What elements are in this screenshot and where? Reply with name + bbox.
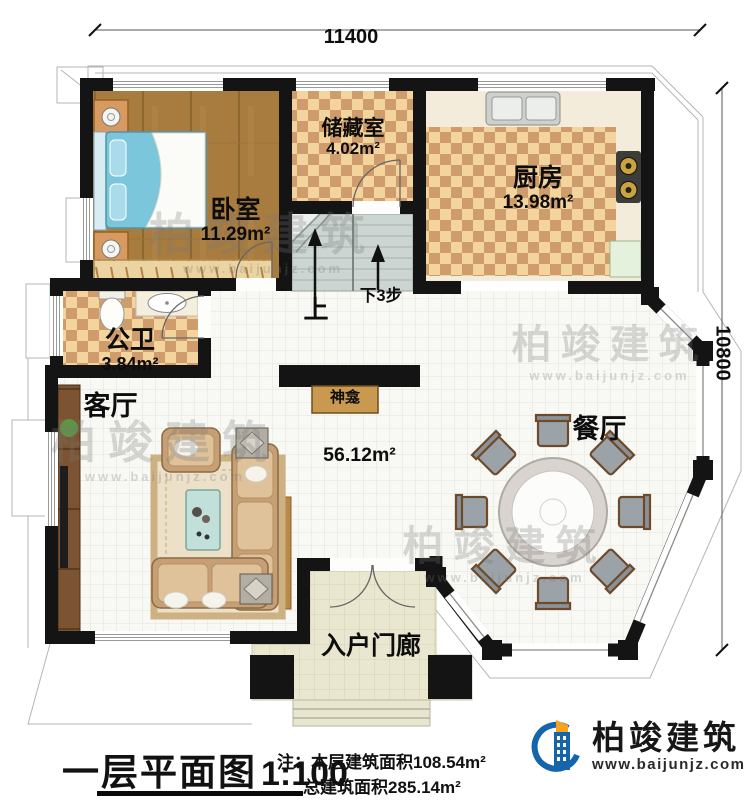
room-label-bedroom: 卧室 11.29m² — [148, 197, 323, 245]
room-label-kitchen: 厨房 13.98m² — [468, 165, 608, 213]
bed-headboard — [94, 132, 106, 230]
open-area-label: 56.12m² — [287, 445, 432, 466]
note-line2: 总建筑面积285.14m² — [303, 776, 486, 801]
company-logo: 柏竣建筑 www.baijunjz.com — [528, 716, 745, 778]
title-text: 一层平面图 — [62, 742, 257, 796]
room-label-porch: 入户门廊 — [276, 633, 466, 661]
dimension-right: 10800 — [712, 306, 734, 401]
stairs-down-label: 下3步 — [349, 287, 413, 305]
shrine-label: 神龛 — [312, 390, 378, 407]
watermark: 柏竣建筑 www.baijunjz.com — [392, 512, 617, 585]
shrine-wall — [279, 365, 420, 387]
logo-icon — [528, 716, 584, 778]
stairs-up-label: 上 — [301, 297, 331, 325]
brand-name: 柏竣建筑 — [592, 721, 745, 756]
watermark: 柏竣建筑 www.baijunjz.com — [502, 312, 717, 383]
title-underline — [97, 791, 303, 796]
note-line1: 注：本层建筑面积108.54m² — [277, 751, 486, 776]
porch-pillar — [250, 655, 294, 699]
area-notes: 注：本层建筑面积108.54m² 总建筑面积285.14m² — [277, 751, 486, 800]
floor-plan: 柏竣建筑 www.baijunjz.com 柏竣建筑 www.baijunjz.… — [0, 0, 750, 801]
porch-steps — [293, 700, 430, 726]
room-label-dining: 餐厅 — [542, 415, 657, 445]
dimension-top: 11400 — [296, 26, 406, 48]
room-label-living: 客厅 — [58, 392, 163, 422]
fridge — [610, 241, 641, 277]
room-label-storage: 储藏室 4.02m² — [294, 117, 412, 159]
brand-website: www.baijunjz.com — [592, 756, 745, 773]
room-label-bathroom: 公卫 3.84m² — [60, 327, 200, 374]
porch-pillar — [428, 655, 472, 699]
end-table — [240, 574, 272, 604]
